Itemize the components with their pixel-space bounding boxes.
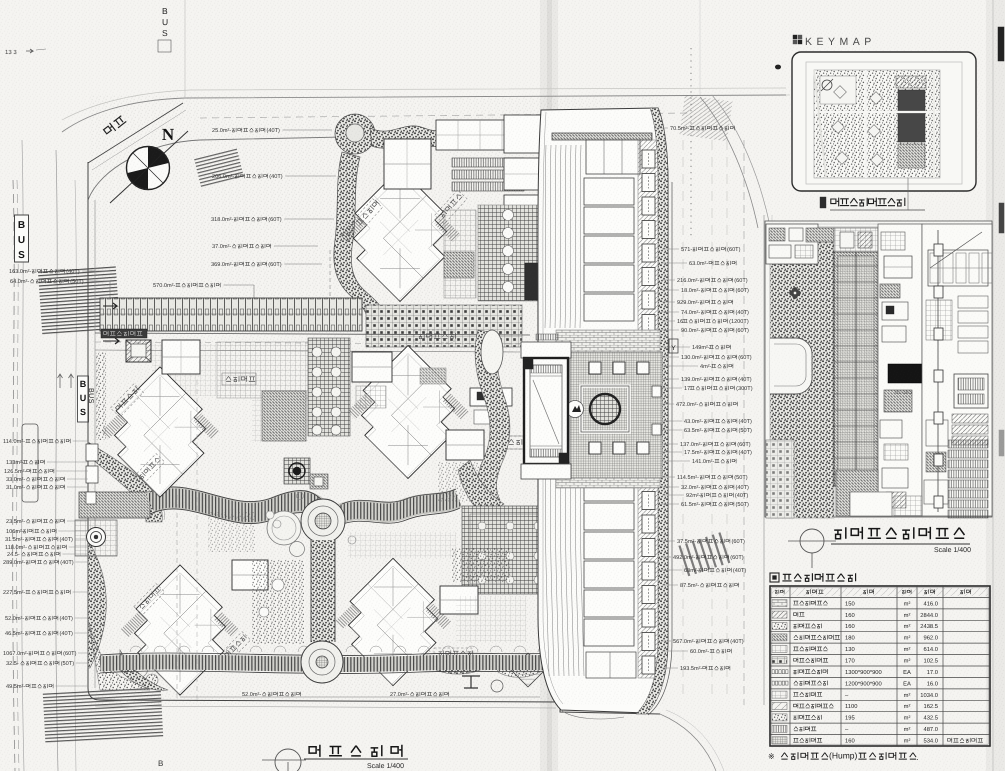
svg-text:m²: m² [904, 715, 911, 722]
svg-text:.: . [916, 752, 919, 762]
svg-text:(40T): (40T) [66, 268, 80, 275]
svg-text:m²: m² [904, 635, 911, 642]
svg-text:43.0m²-: 43.0m²- [684, 419, 703, 425]
svg-text:432.5: 432.5 [923, 715, 938, 722]
svg-text:S: S [80, 407, 86, 417]
svg-text:163.0m²-: 163.0m²- [9, 269, 32, 275]
svg-text:472.0m²-: 472.0m²- [676, 402, 699, 408]
svg-text:1100: 1100 [845, 703, 857, 710]
svg-text:m²: m² [904, 612, 911, 619]
svg-text:92m²-: 92m²- [686, 493, 701, 499]
svg-text:17.5m²-: 17.5m²- [684, 450, 703, 456]
svg-text:m²: m² [904, 658, 911, 665]
svg-text:(50T): (50T) [734, 474, 748, 481]
svg-text:13 3: 13 3 [5, 49, 17, 56]
svg-text:31.5m²-: 31.5m²- [5, 537, 24, 543]
svg-text:(Hump): (Hump) [829, 751, 858, 761]
svg-text:17.0: 17.0 [927, 669, 938, 676]
svg-text:m²: m² [904, 600, 911, 607]
svg-text:102.5: 102.5 [923, 658, 938, 665]
svg-text:m²: m² [904, 726, 911, 733]
svg-text:(40T): (40T) [733, 567, 747, 574]
svg-text:(60T): (60T) [736, 287, 750, 294]
svg-text:(40T): (40T) [735, 492, 749, 499]
svg-text:130.0m²-: 130.0m²- [681, 355, 704, 361]
svg-text:2844.0: 2844.0 [920, 612, 938, 619]
svg-text:33.0m²-: 33.0m²- [6, 477, 25, 483]
svg-text:195: 195 [845, 715, 855, 722]
svg-text:B: B [162, 6, 168, 16]
svg-text:16: 16 [677, 319, 683, 325]
svg-text:24.5-: 24.5- [7, 552, 20, 558]
svg-text:133m²-: 133m²- [6, 460, 24, 466]
svg-text:EA: EA [903, 670, 911, 676]
svg-text:B: B [80, 379, 87, 389]
svg-text:150: 150 [845, 600, 855, 607]
svg-text:63.5m²-: 63.5m²- [684, 428, 703, 434]
svg-text:87.5m²-: 87.5m²- [680, 583, 699, 589]
svg-text:m²: m² [904, 623, 911, 630]
svg-text:B: B [18, 220, 25, 231]
svg-text:KEYMAP: KEYMAP [805, 36, 876, 48]
svg-text:Scale 1/400: Scale 1/400 [367, 762, 404, 770]
svg-text:114.5m²-: 114.5m²- [677, 475, 699, 481]
svg-text:74.0m²-: 74.0m²- [681, 310, 700, 316]
svg-text:(40T): (40T) [736, 309, 750, 316]
svg-text:60.0m²-: 60.0m²- [690, 649, 709, 655]
svg-text:126.5m²-: 126.5m²- [4, 469, 27, 475]
svg-text:1034.0: 1034.0 [920, 692, 938, 699]
svg-text:492.0m²-: 492.0m²- [673, 555, 696, 561]
svg-text:m²: m² [904, 646, 911, 653]
svg-text:289.0m²-: 289.0m²- [3, 560, 26, 566]
svg-text:(50T): (50T) [739, 427, 753, 434]
svg-text:37.5m²-: 37.5m²- [677, 539, 696, 545]
svg-text:(60T): (60T) [738, 354, 752, 361]
svg-text:m²: m² [904, 692, 911, 699]
svg-text:137.0m²-: 137.0m²- [680, 442, 703, 448]
svg-text:U: U [18, 235, 25, 246]
svg-text:(60T): (60T) [734, 277, 748, 284]
svg-text:68m²-: 68m²- [684, 568, 699, 574]
svg-text:139.0m²-: 139.0m²- [681, 377, 704, 383]
svg-text:(60T): (60T) [730, 554, 744, 561]
svg-text:m²: m² [904, 703, 911, 710]
svg-text:Y: Y [671, 345, 676, 352]
svg-text:(40T): (40T) [739, 418, 753, 425]
svg-text:160: 160 [845, 738, 855, 745]
svg-text:(60T): (60T) [737, 441, 751, 448]
svg-text:32.5-: 32.5- [6, 661, 19, 667]
svg-text:S: S [162, 28, 168, 38]
svg-text:416.0: 416.0 [923, 600, 938, 607]
svg-text:(60T): (60T) [732, 538, 746, 545]
svg-text:(40T): (40T) [60, 536, 74, 543]
svg-text:1300*900*900: 1300*900*900 [845, 669, 882, 676]
svg-text:227.5m²-: 227.5m²- [3, 590, 26, 596]
svg-text:160: 160 [845, 612, 855, 619]
svg-text:118.0m²-: 118.0m²- [5, 545, 27, 551]
svg-text:487.0: 487.0 [923, 726, 938, 733]
svg-text:130: 130 [845, 646, 855, 653]
svg-text:180: 180 [845, 635, 855, 642]
svg-text:(40T): (40T) [60, 559, 74, 566]
svg-text:52.0m²-: 52.0m²- [5, 616, 24, 622]
svg-text:90.0m²-: 90.0m²- [681, 328, 700, 334]
svg-text:32.0m²-: 32.0m²- [681, 485, 700, 491]
svg-text:(40T): (40T) [60, 615, 74, 622]
svg-text:31.0m²-: 31.0m²- [6, 485, 25, 491]
svg-text:70.5m²-: 70.5m²- [670, 126, 689, 132]
svg-text:EA: EA [903, 681, 911, 687]
svg-text:216.0m²-: 216.0m²- [677, 278, 700, 284]
svg-text:m²: m² [904, 738, 911, 745]
svg-text:(40T): (40T) [739, 449, 753, 456]
svg-text:170: 170 [845, 658, 855, 665]
svg-text:(40T): (40T) [736, 484, 750, 491]
svg-text:106m²-: 106m²- [6, 529, 24, 535]
svg-text:(50T): (50T) [736, 501, 750, 508]
svg-text:114.0m²-: 114.0m²- [3, 439, 25, 445]
svg-text:193.5m²-: 193.5m²- [680, 666, 703, 672]
svg-text:63.0m²-: 63.0m²- [689, 261, 708, 267]
svg-text:16.0: 16.0 [927, 680, 938, 687]
svg-text:(300T): (300T) [736, 385, 753, 392]
svg-text:2438.5: 2438.5 [920, 623, 938, 630]
svg-text:1067.0m²-: 1067.0m²- [3, 651, 29, 657]
svg-text:162.5: 162.5 [923, 703, 938, 710]
svg-text:(60T): (60T) [63, 650, 77, 657]
svg-text:B: B [158, 759, 163, 768]
svg-text:534.0: 534.0 [923, 738, 938, 745]
svg-text:1200*900*900: 1200*900*900 [845, 680, 882, 687]
svg-text:929.0m²-: 929.0m²- [677, 300, 700, 306]
svg-text:※: ※ [768, 752, 775, 761]
svg-text:(60T): (60T) [736, 327, 750, 334]
svg-text:18.0m²-: 18.0m²- [681, 288, 700, 294]
svg-text:U: U [162, 17, 168, 27]
svg-text:(40T): (40T) [60, 630, 74, 637]
svg-text:149m²-: 149m²- [692, 345, 710, 351]
svg-text:614.0: 614.0 [923, 646, 938, 653]
svg-text:160: 160 [845, 623, 855, 630]
svg-text:(50T): (50T) [70, 278, 84, 285]
svg-text:4m²-: 4m²- [700, 364, 712, 370]
svg-text:962.0: 962.0 [923, 635, 938, 642]
svg-text:17: 17 [684, 386, 690, 392]
svg-text:(60T): (60T) [727, 246, 741, 253]
svg-text:64.0m²-: 64.0m²- [10, 279, 29, 285]
svg-text:49.5m²-: 49.5m²- [6, 684, 25, 690]
svg-text:(50T): (50T) [61, 660, 75, 667]
svg-text:(40T): (40T) [738, 376, 752, 383]
svg-text:567.0m²-: 567.0m²- [673, 639, 696, 645]
svg-text:23.5m²-: 23.5m²- [6, 519, 25, 525]
svg-text:141.0m²-: 141.0m²- [692, 459, 715, 465]
svg-text:61.5m²-: 61.5m²- [681, 502, 700, 508]
svg-text:Scale 1/400: Scale 1/400 [934, 546, 971, 554]
svg-text:(1200T): (1200T) [729, 318, 749, 325]
svg-text:U: U [80, 393, 87, 403]
svg-text:(40T): (40T) [730, 638, 744, 645]
svg-text:S: S [18, 250, 25, 261]
svg-text:571-: 571- [681, 247, 692, 253]
svg-text:46.5m²-: 46.5m²- [5, 631, 24, 637]
